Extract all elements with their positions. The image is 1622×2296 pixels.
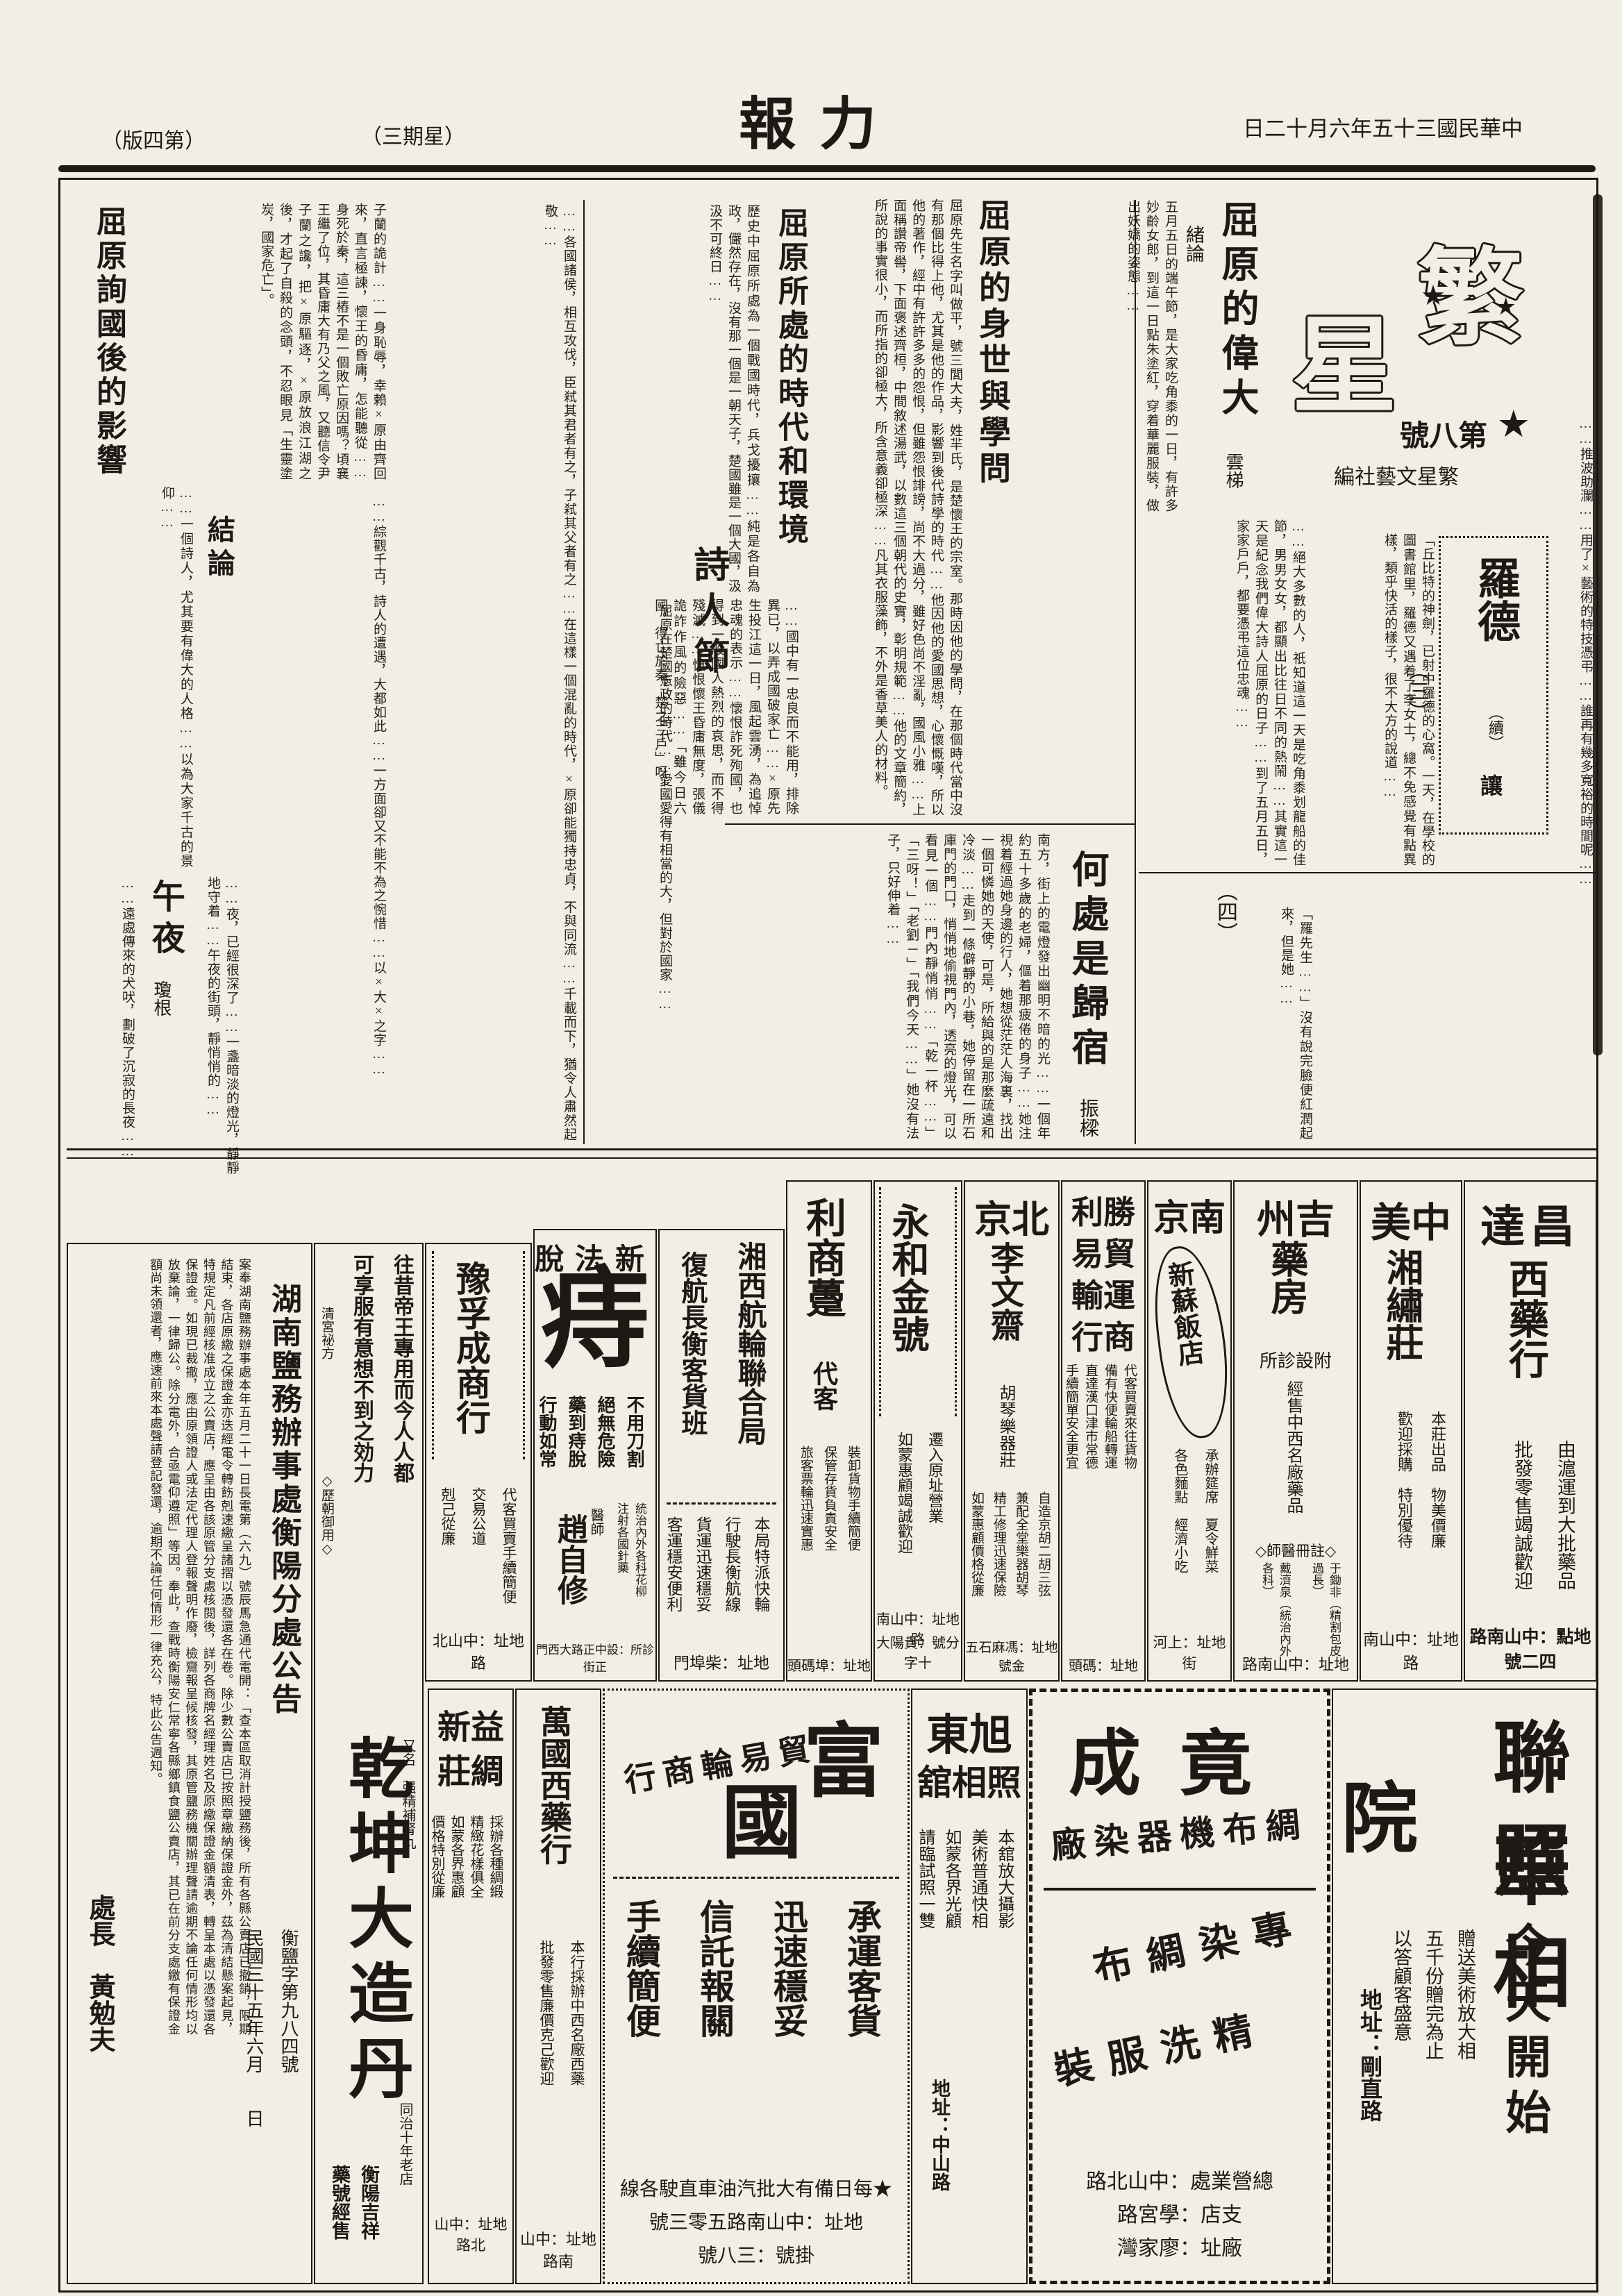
ad-line: 兼配全堂樂器胡琴	[1012, 1491, 1030, 1630]
ad-store: 衡陽吉祥	[356, 2165, 383, 2262]
ad-title: 中美	[1361, 1190, 1461, 1248]
ad-address: 地址：中山路	[926, 2079, 953, 2266]
ad-title: 勝利	[1062, 1187, 1144, 1233]
ad-line: 各色麵點 經濟小吃	[1170, 1448, 1190, 1629]
article-body: ……一個詩人，尤其要有偉大的人格……以為大家千古的景仰……	[67, 486, 194, 868]
ad-nanjing-restaurant: 南京 新蘇飯店 承辦筵席 夏令鮮菜 各色麵點 經濟小吃 地址：上河街	[1147, 1180, 1232, 1682]
ad-branch: 分號：貴陽大十字	[875, 1632, 961, 1672]
ad-qiankun-pill: 往昔帝王專用而今人人都 可享服有意想不到之効力 清宮祕方 ◇歷朝御用◇ 又名 强…	[314, 1243, 424, 2284]
notice-doc-no: 衡鹽字第九八四號	[276, 1929, 301, 2137]
article-body: 「丘比特的神劍，已射中羅德的心窩。一天，在學校的圖書館里，羅德又遇着了李女士，總…	[1312, 533, 1436, 866]
headline-shenshi: 屈原的身世與學問	[969, 199, 1015, 511]
ad-line: 美術普通快相	[966, 1829, 990, 2051]
supplement-issue-no: 第八號	[1378, 412, 1510, 455]
ad-doctor-label: ◇註冊醫師◇	[1235, 1540, 1357, 1561]
ad-line: 自造京胡二胡三弦	[1034, 1491, 1053, 1630]
newspaper-page: 中華民國三十五年六月十二日 力報 （星期三） （第四版） 繁 星 ★ ★ ★ 第…	[0, 0, 1622, 2296]
ad-footer-line: 總營業處：中山北路	[1032, 2164, 1327, 2195]
ad-service: 迅速穩妥	[763, 1899, 813, 2072]
ad-service: 手續簡便	[616, 1899, 666, 2072]
ad-jizhou-drugstore: 吉州 藥房 附設診所 經售中西名廠藥品 ◇註冊醫師◇ 戴濟泉（統治內外各科） 于…	[1233, 1180, 1358, 1682]
ad-service: 精洗服裝	[1048, 1996, 1272, 2096]
edition-label: （第四版）	[101, 124, 206, 154]
ad-doctor: 趙自修	[547, 1514, 592, 1625]
ad-store: 藥號經售	[326, 2165, 353, 2262]
ad-subtitle-vertical: 復航長衡客貨班	[673, 1251, 711, 1480]
ad-line: 五千份贈完為止	[1420, 1929, 1447, 2123]
ad-lianhua-photo-studio: 聯華 照相 院 今天開始 贈送美術放大相 五千份贈完為止 以答顧客盛意 地址：剛…	[1332, 1689, 1597, 2284]
ad-title: 院	[1341, 1757, 1418, 1868]
ad-title: 南京	[1148, 1189, 1230, 1241]
article-body: 南方，街上的電燈發出幽明不暗的光……一個年約五十多歲的老婦，傴着那疲倦的身子………	[726, 833, 1051, 1140]
ad-xudong-photo-studio: 旭東 照相舘 本舘放大攝影 美術普通快相 如蒙各界光顧 請臨試照一雙 地址：中山…	[911, 1689, 1028, 2284]
notice-signer-name: 黃勉夫	[85, 1973, 114, 2052]
ad-line: 藥到痔脫	[563, 1396, 589, 1486]
ad-line: 絕無危險	[592, 1396, 618, 1486]
ad-fuguo-shipping: 富 國 貿易輪商行 承運客貨 迅速穩妥 信託報關 手續簡便 ★每日備有大批汽油車…	[603, 1689, 910, 2284]
ad-line: 批發零售竭誠歡迎	[1509, 1440, 1536, 1634]
ad-title: 竟成	[1032, 1704, 1327, 1809]
byline-qionggen: 瓊根	[149, 980, 174, 1036]
ad-line: 旅客票輪迅速實惠	[796, 1446, 815, 1626]
ad-service: 信託報關	[689, 1899, 739, 2072]
ad-doctor: 于鋤非（精割包皮過長）	[1308, 1562, 1343, 1661]
ad-title-vertical: 湘西航輪聯合局	[728, 1241, 771, 1477]
article-body: 子蘭的詭計……一身恥辱，幸賴×原由齊回來，直言極諫，懷王的昏庸，怎能聽從……身死…	[131, 203, 387, 480]
ad-title: 綢莊	[429, 1744, 512, 1793]
ad-wanguo-pharmacy: 萬國西藥行 本行採辦中西名廠西藥 批發零售廉價克己歡迎 地址：中山南路	[515, 1689, 601, 2284]
ad-subtitle: 代客	[805, 1361, 842, 1430]
ad-address: 地址：埠碼頭	[787, 1654, 871, 1675]
ad-title: 吉州	[1235, 1189, 1357, 1245]
ad-line: 貨運迅速穩妥	[690, 1516, 714, 1641]
ad-title: 貿易	[1062, 1229, 1144, 1275]
ad-line: 本局特派快輪	[749, 1516, 772, 1641]
ad-line: 不用刀割	[621, 1396, 647, 1486]
headline-yingxiang: 屈原詢國後的影響	[86, 206, 131, 504]
ad-line: 歡迎採購 特別優待	[1393, 1411, 1415, 1619]
ad-line: 本舘放大攝影	[992, 1829, 1017, 2051]
rule	[1135, 200, 1136, 1144]
ad-line: 以答顧客盛意	[1388, 1929, 1415, 2123]
ad-yixin-silk-shop: 益新 綢莊 採辦各種綢緞 精緻花樣俱全 如蒙各界惠顧 價格特別從廉 地址：中山北…	[428, 1689, 514, 2284]
ad-divider	[1044, 1888, 1316, 1891]
serial-title: 羅德	[1463, 556, 1525, 681]
ad-title-vertical: 西藥行	[1496, 1258, 1554, 1418]
ad-address: 地址：柴埠門	[660, 1650, 783, 1673]
notice-title: 湖南鹽務辦事處衡陽分處公告	[261, 1283, 306, 1783]
ad-footer-line: 廠址：廖家灣	[1032, 2231, 1327, 2261]
ad-liwenzhai-instruments: 北京 李文齋 胡琴樂器莊 自造京胡二胡三弦 兼配全堂樂器胡琴 精工修理迅速保險 …	[964, 1180, 1060, 1682]
ad-extra: 注射各國針藥	[613, 1502, 630, 1627]
ad-subtitle: 附設診所	[1235, 1347, 1357, 1373]
article-body: 歷史中屈原所處為一個戰國時代，兵戈擾攘……純是各自為政，儼然存在，沒有那一個是一…	[590, 204, 761, 593]
ad-zhongmei-embroidery: 中美 湘繡莊 本莊出品 物美價廉 歡迎採購 特別優待 地址：中山南路	[1360, 1180, 1462, 1682]
ad-title-vertical: 藥房	[1259, 1240, 1314, 1337]
ad-divider	[667, 1502, 776, 1505]
article-body: 五月五日的端午節，是大家吃角黍的一日，有許多妙齡女郎，到這一日點朱塗紅，穿着華麗…	[1139, 200, 1179, 512]
notice-signer-title: 處長	[85, 1894, 114, 1947]
supplement-logo: 繁 星 ★ ★ ★	[1289, 212, 1528, 407]
article-body: ……國中有一忠良而不能用，排除異已，以弄成國破家亡……×原先生投江這一日，風起雲…	[694, 598, 800, 815]
ad-lishang-warehouse: 利商躉 代客 裝卸貨物手續簡便 保管存貨負責安全 旅客票輪迅速實惠 地址：埠碼頭	[786, 1180, 872, 1682]
masthead-title: 力報	[701, 78, 937, 160]
ad-line: 採辦各種綢緞	[485, 1815, 505, 2009]
ad-title: 北京	[965, 1189, 1058, 1243]
ad-title-vertical: 利商躉	[793, 1197, 851, 1350]
ad-changda-pharmacy: 昌達 西藥行 由滬運到大批藥品 批發零售竭誠歡迎 地點：中山南路四二號	[1464, 1180, 1597, 1682]
article-body: 屈原先生名字叫做平，號三閭大夫，姓羋氏，是楚懷王的宗室。那時因他的學問，在那個時…	[805, 199, 964, 816]
ad-address: 地址：中山南路	[1235, 1652, 1357, 1675]
ad-line: 保管存貨負責安全	[820, 1446, 839, 1626]
logo-star-icon: ★	[1496, 293, 1516, 321]
ad-big-char: 痔	[535, 1266, 655, 1376]
notice-salt-bureau: 湖南鹽務辦事處衡陽分處公告 案奉湖南鹽務辦事處本年五月二十一日長電第（六九）號辰…	[67, 1243, 312, 2284]
ad-line: 裝卸貨物手續簡便	[844, 1446, 862, 1626]
headline-shidai: 屈原所處的時代和環境	[768, 207, 812, 575]
ad-line: 本莊出品 物美價廉	[1426, 1411, 1448, 1619]
logo-char-xing: 星	[1291, 280, 1397, 433]
ad-bubble: 新蘇飯店	[1147, 1242, 1232, 1442]
ad-address: 地址：中山南路	[517, 2227, 600, 2272]
article-body: ……遠處傳來的犬吠，劃破了沉寂的長夜……	[67, 876, 136, 1175]
ad-reg-no: 掛號：三八號	[605, 2240, 908, 2268]
ad-line: 如蒙各界光顧	[939, 1829, 964, 2051]
ad-bubble-name: 新蘇飯店	[1158, 1259, 1216, 1429]
ad-divider	[613, 1877, 899, 1879]
ad-xiangxi-shipping: 湘西航輪聯合局 復航長衡客貨班 本局特派快輪 行駛長衡航線 貨運迅速穩妥 客運穩…	[658, 1229, 785, 1682]
article-body: ……綜觀千古，詩人的遭遇，大都如此……一方面卻又不能不為之惋惜……以×大×之字……	[244, 494, 387, 1144]
ad-line: 客運穩安便利	[661, 1516, 685, 1641]
logo-star-icon: ★	[1421, 279, 1446, 312]
ad-line: 價格特別從廉	[428, 1815, 447, 2009]
notice-date: 民國三十五年六月 日	[241, 1929, 267, 2172]
header-rule	[58, 165, 1596, 172]
ad-title-vertical: 湘繡莊	[1374, 1248, 1429, 1394]
ad-line: 遷入原址營業	[923, 1432, 946, 1605]
ad-title-vertical: 豫孚成商行	[446, 1261, 496, 1462]
ad-jingcheng-dye-works: 竟成 綢布機器染廠 專染綢布 精洗服裝 總營業處：中山北路 支店：學宮路 廠址：…	[1029, 1689, 1330, 2284]
ad-address: 地址：中山北路	[429, 2213, 512, 2255]
ad-clinic-address: 診所：設中正路大西門正街	[535, 1640, 655, 1675]
ad-address: 地址：馮麻石五金號	[965, 1637, 1058, 1675]
ad-line: 如蒙惠顧竭誠歡迎	[893, 1432, 915, 1605]
ad-line: 精工修理迅速保險	[989, 1491, 1008, 1630]
ad-sub: 清宮祕方	[317, 1307, 336, 1432]
article-body: ……各國諸侯，相互攻伐，臣弒其君者有之，子弒其父者有之……在這樣一個混亂的時代，…	[393, 204, 578, 1141]
section-label-xulun: 緒論	[1180, 225, 1207, 308]
ad-title: 商行	[1062, 1312, 1144, 1358]
ad-address: 地址：中山南路	[1361, 1626, 1461, 1673]
ad-service: 專染綢布	[1087, 1893, 1311, 1993]
ad-line: 備有快便輪船轉運	[1101, 1364, 1119, 1634]
ad-line: 本行採辦中西名廠西藥	[567, 1940, 587, 2162]
ad-title: 昌達	[1465, 1191, 1596, 1255]
rule	[725, 823, 1135, 825]
article-body: ……推波助瀾……用了×藝術的特技憑弔……誰再有幾多寬裕的時間呢……	[1554, 417, 1594, 1055]
ad-footer-line: 支店：學宮路	[1032, 2197, 1327, 2228]
ad-line: 手續簡單安全更宜	[1062, 1364, 1080, 1634]
serial-author: 讓	[1474, 774, 1506, 816]
headline-jielun: 結論	[199, 515, 239, 605]
ad-title-vertical: 萬國西藥行	[530, 1705, 576, 1913]
ad-hemorrhoid-clinic: 新法脫 痔 不用刀割 絕無危險 藥到痔脫 行動如常 統治內外各科花柳 注射各國針…	[533, 1229, 657, 1682]
notice-signer: 處長 黃勉夫	[81, 1894, 119, 2123]
byline-yunti: 雲梯	[1221, 453, 1246, 515]
ad-lead: 往昔帝王專用而今人人都	[386, 1254, 417, 1712]
supplement-editor: 繁星文藝社編	[1289, 460, 1504, 490]
ad-title: 益新	[429, 1700, 512, 1748]
ad-lead: 可享服有意想不到之効力	[346, 1254, 376, 1726]
byline-zhenliang: 振樑	[1073, 1098, 1101, 1154]
serial-cont-label: （續）	[1484, 705, 1506, 767]
weekday-label: （星期三）	[361, 119, 465, 150]
ad-yufucheng-trading: 豫孚成商行 代客買賣手續簡便 交易公道 剋己從廉 地址：中山北路	[425, 1243, 532, 1682]
ad-line: 由滬運到大批藥品	[1552, 1440, 1579, 1634]
ad-line: 直達漢口津市常德	[1081, 1364, 1100, 1634]
ad-line: 代客買賣手續簡便	[499, 1487, 519, 1633]
ad-sub: ◇歷朝御用◇	[317, 1473, 336, 1626]
ad-title: 旭東	[912, 1700, 1026, 1762]
ad-star-line: ★每日備有大批汽油車直駛各線	[605, 2174, 908, 2202]
ad-address: 地址：上河街	[1148, 1632, 1230, 1673]
ad-shengli-trading: 勝利 貿易 運輸 商行 代客買賣來往貨物 備有快便輪船轉運 直達漢口津市常德 手…	[1061, 1180, 1146, 1682]
ad-line: 精緻花樣俱全	[466, 1815, 486, 2009]
ad-line: 贈送美術放大相	[1452, 1929, 1479, 2123]
ad-line: 交易公道	[468, 1487, 489, 1633]
article-body: ……絕大多數的人，祇知道這一天是吃角黍划龍船的佳節，男男女女，都顯出比往日不同的…	[1140, 519, 1307, 866]
article-body: ……夜，已經很深了……一盞暗淡的燈光，靜靜地守着……午夜的街頭，靜悄悄的……	[179, 876, 240, 1175]
ad-address: 地址：中山南路五零三號	[605, 2207, 908, 2235]
ad-line: 如蒙各界惠顧	[446, 1815, 467, 2009]
ad-line: 如蒙惠顧價格從廉	[967, 1491, 986, 1630]
ad-line: 代客買賣來往貨物	[1120, 1364, 1139, 1634]
ad-yonghe-goldshop: 永和金號 遷入原址營業 如蒙惠顧竭誠歡迎 地址：中山南路 分號：貴陽大十字	[873, 1180, 962, 1682]
ad-address: 地址：中山北路	[426, 1629, 530, 1673]
ad-line: 剋己從廉	[437, 1487, 458, 1633]
ad-title: 運輸	[1062, 1271, 1144, 1316]
headline-guisu: 何處是歸宿	[1060, 850, 1114, 1093]
ad-slogan: 今天開始	[1490, 1922, 1557, 2172]
ad-title-vertical: 永和金號	[880, 1203, 935, 1397]
ad-line: 請臨試照一雙	[913, 1829, 937, 2051]
rule	[583, 200, 585, 1144]
ad-address: 地點：中山南路四二號	[1465, 1623, 1596, 1673]
ad-address: 地址：碼頭	[1062, 1654, 1144, 1675]
ad-line: 行駛長衡航線	[719, 1516, 743, 1641]
ad-title-vertical: 李文齋	[979, 1241, 1028, 1373]
ad-note: 同治十年老店	[395, 2102, 415, 2255]
issue-date: 中華民國三十五年六月十二日	[1243, 111, 1597, 142]
scan-streak	[1593, 194, 1603, 1055]
ad-service: 承運客貨	[837, 1899, 887, 2072]
ad-product-name: 乾坤大造丹	[328, 1734, 422, 2130]
ad-doctor: 戴濟泉（統治內外各科）	[1258, 1562, 1293, 1661]
ad-line: 行動如常	[534, 1396, 560, 1486]
ad-extra: 統治內外各科花柳	[631, 1502, 649, 1627]
ad-line: 批發零售廉價克己歡迎	[536, 1940, 557, 2162]
ad-address: 地址：剛直路	[1354, 1988, 1386, 2266]
article-body: 「羅先生……」沒有說完臉便紅潤起來，但是她……	[1140, 907, 1314, 1140]
ad-line: 經售中西名廠藥品	[1281, 1380, 1305, 1533]
ad-subtitle: 胡琴樂器莊	[994, 1384, 1018, 1482]
serial-box-luode: 羅德 （續） 讓	[1439, 536, 1548, 835]
rule	[1139, 872, 1596, 873]
ad-line: 承辦筵席 夏令鮮菜	[1201, 1448, 1221, 1629]
ad-title: 照相舘	[912, 1755, 1026, 1805]
section-divider	[67, 1148, 1597, 1159]
